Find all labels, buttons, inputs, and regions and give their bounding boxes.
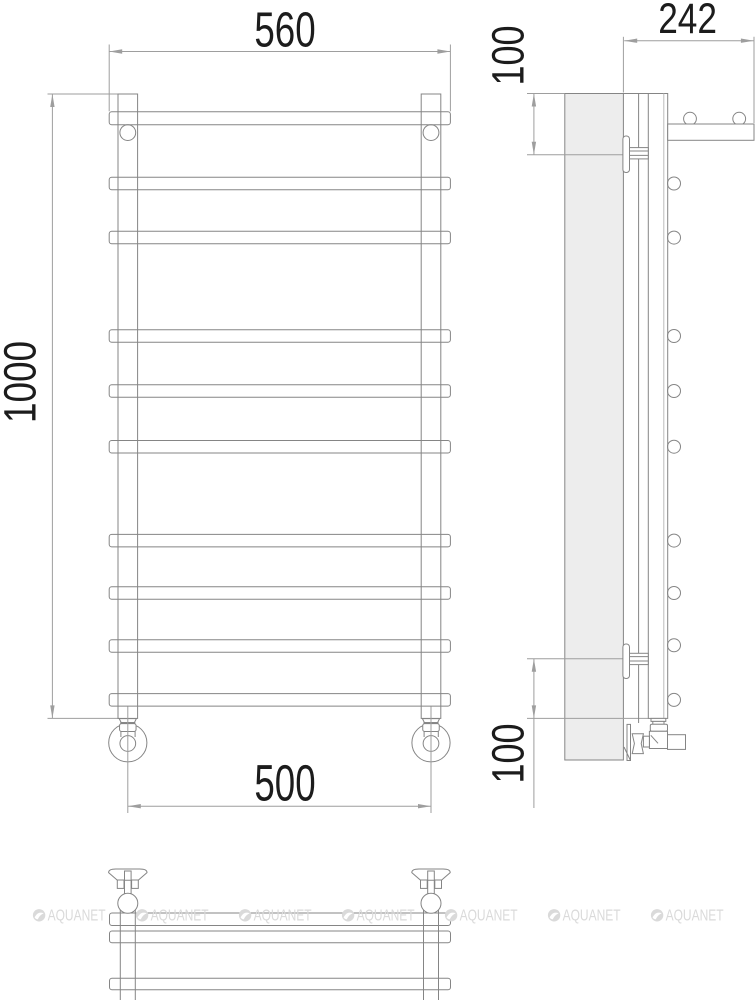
svg-text:AQUANET: AQUANET [666, 906, 725, 924]
svg-text:242: 242 [658, 0, 717, 43]
svg-text:AQUANET: AQUANET [151, 906, 210, 924]
svg-text:AQUANET: AQUANET [460, 906, 519, 924]
svg-text:100: 100 [483, 723, 534, 783]
svg-text:AQUANET: AQUANET [563, 906, 622, 924]
svg-text:500: 500 [254, 756, 315, 812]
svg-text:1000: 1000 [0, 341, 45, 423]
svg-text:AQUANET: AQUANET [254, 906, 313, 924]
svg-text:100: 100 [483, 25, 534, 85]
svg-text:AQUANET: AQUANET [48, 906, 107, 924]
svg-text:560: 560 [254, 4, 315, 58]
svg-text:AQUANET: AQUANET [357, 906, 416, 924]
